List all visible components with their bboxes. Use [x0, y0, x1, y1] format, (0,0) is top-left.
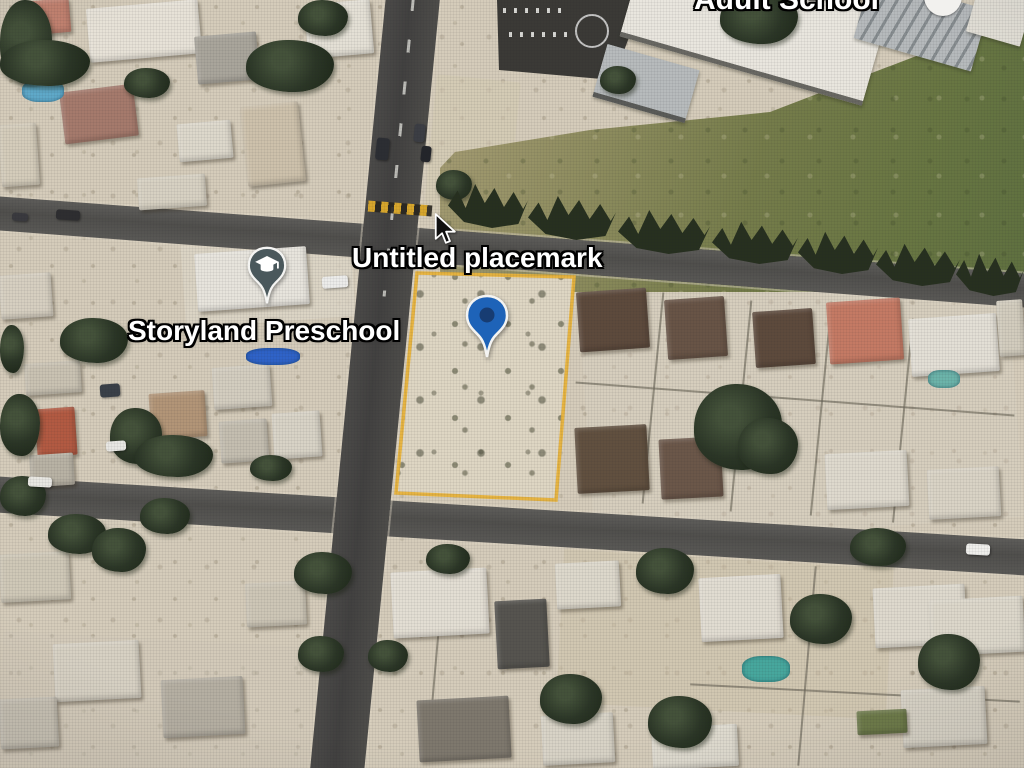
car [12, 212, 29, 221]
car [106, 440, 127, 451]
car [28, 476, 52, 487]
car [413, 123, 426, 142]
car [56, 209, 81, 221]
car [322, 275, 349, 289]
car [375, 137, 390, 160]
car [420, 146, 432, 163]
car [100, 383, 121, 397]
untitled-placemark-label[interactable]: Untitled placemark [352, 242, 603, 274]
car [966, 543, 991, 555]
cars-layer [0, 0, 1024, 768]
mouse-arrow-cursor [433, 213, 461, 249]
blue-placemark-pin-icon[interactable] [463, 294, 511, 360]
storyland-preschool-label[interactable]: Storyland Preschool [128, 315, 400, 347]
satellite-map-view[interactable]: Adult School Untitled placemark Storylan… [0, 0, 1024, 768]
preschool-pin-icon[interactable] [245, 246, 289, 306]
adult-school-label[interactable]: Adult School [694, 0, 879, 17]
